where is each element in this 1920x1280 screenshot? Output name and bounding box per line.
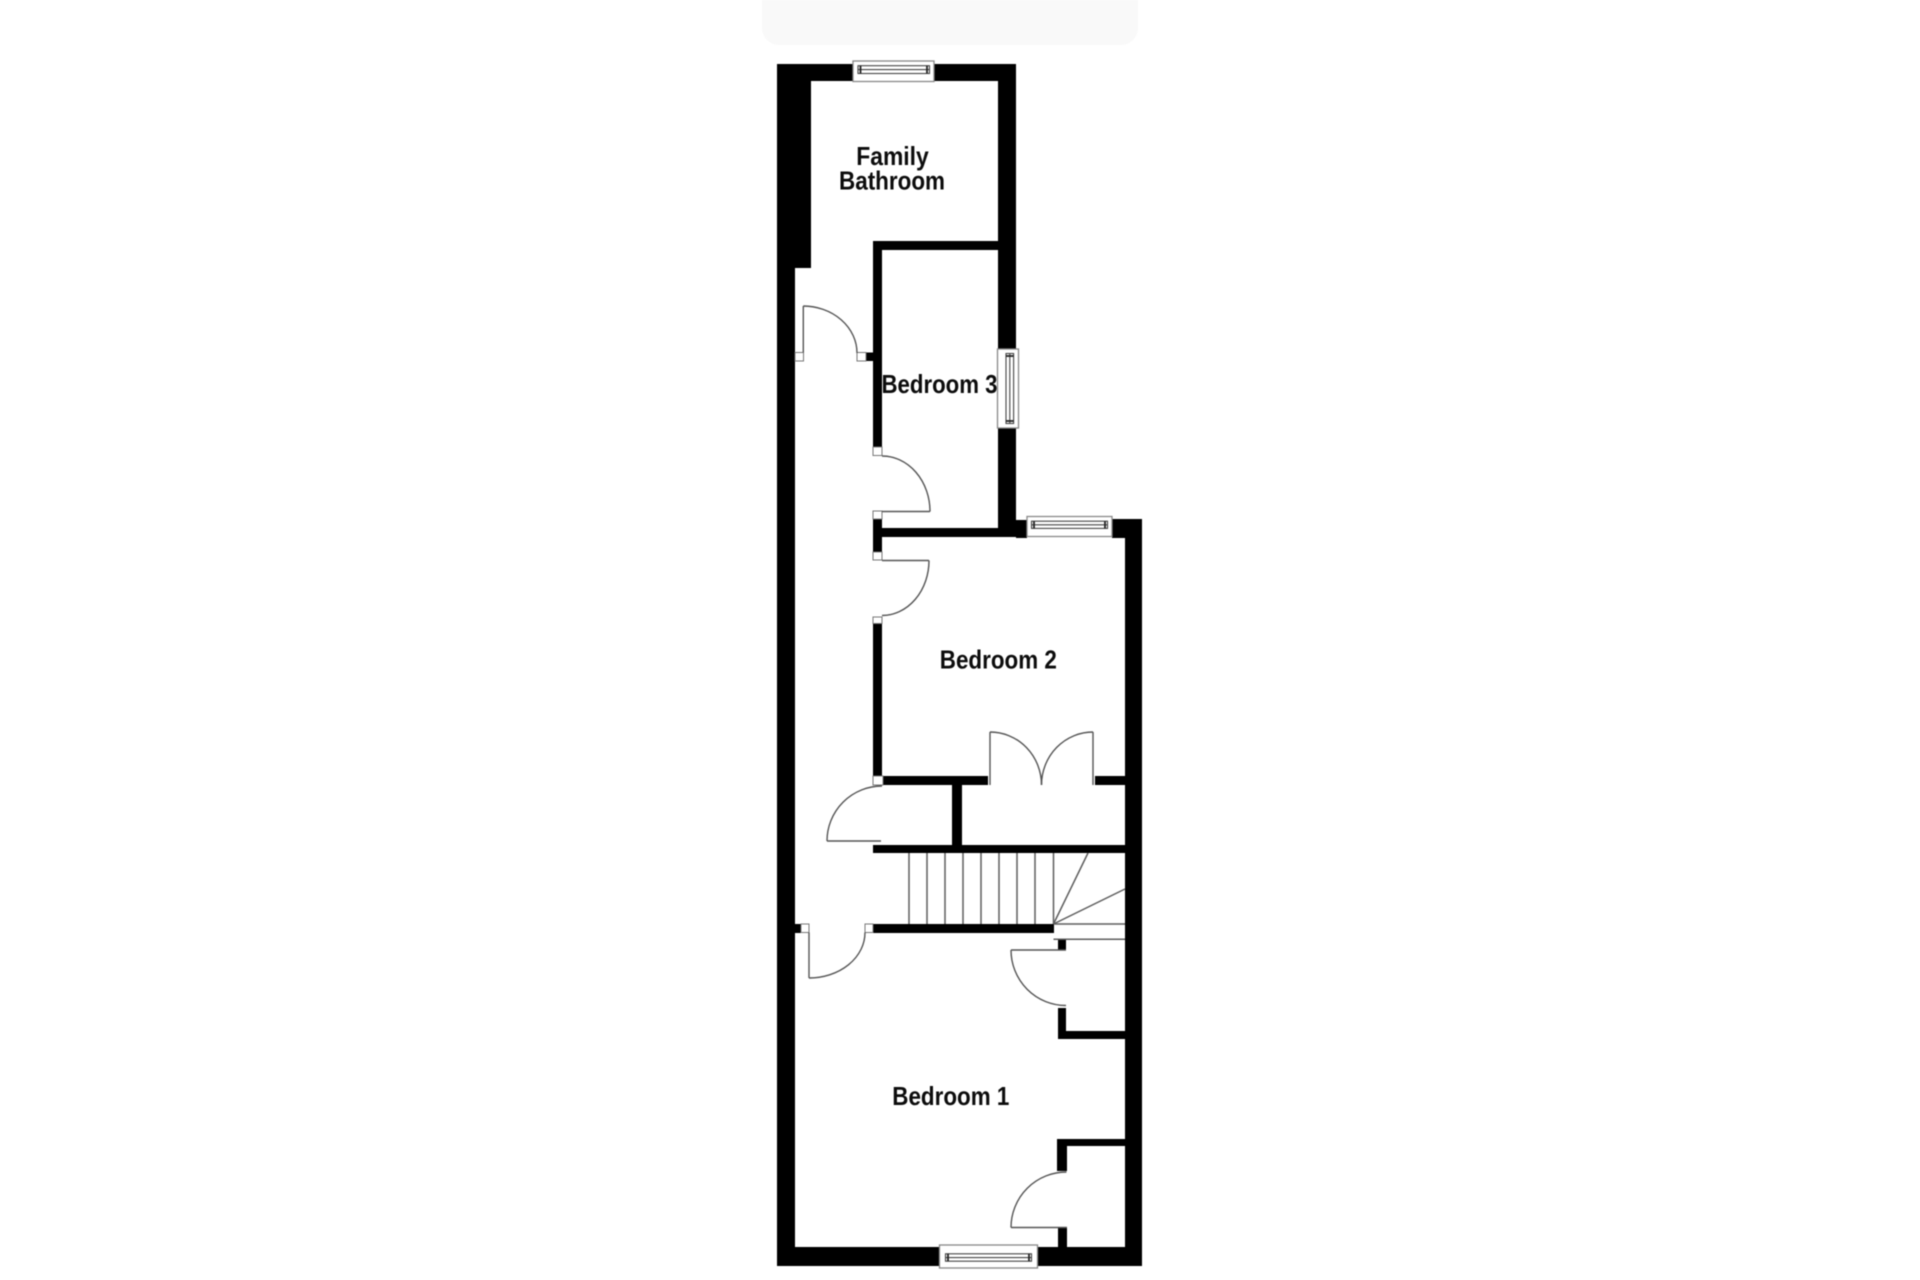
svg-text:Bathroom: Bathroom [839, 165, 945, 195]
svg-text:Bedroom 1: Bedroom 1 [892, 1081, 1009, 1111]
svg-text:Bedroom 3: Bedroom 3 [882, 369, 998, 399]
svg-text:Bedroom 2: Bedroom 2 [940, 645, 1057, 675]
